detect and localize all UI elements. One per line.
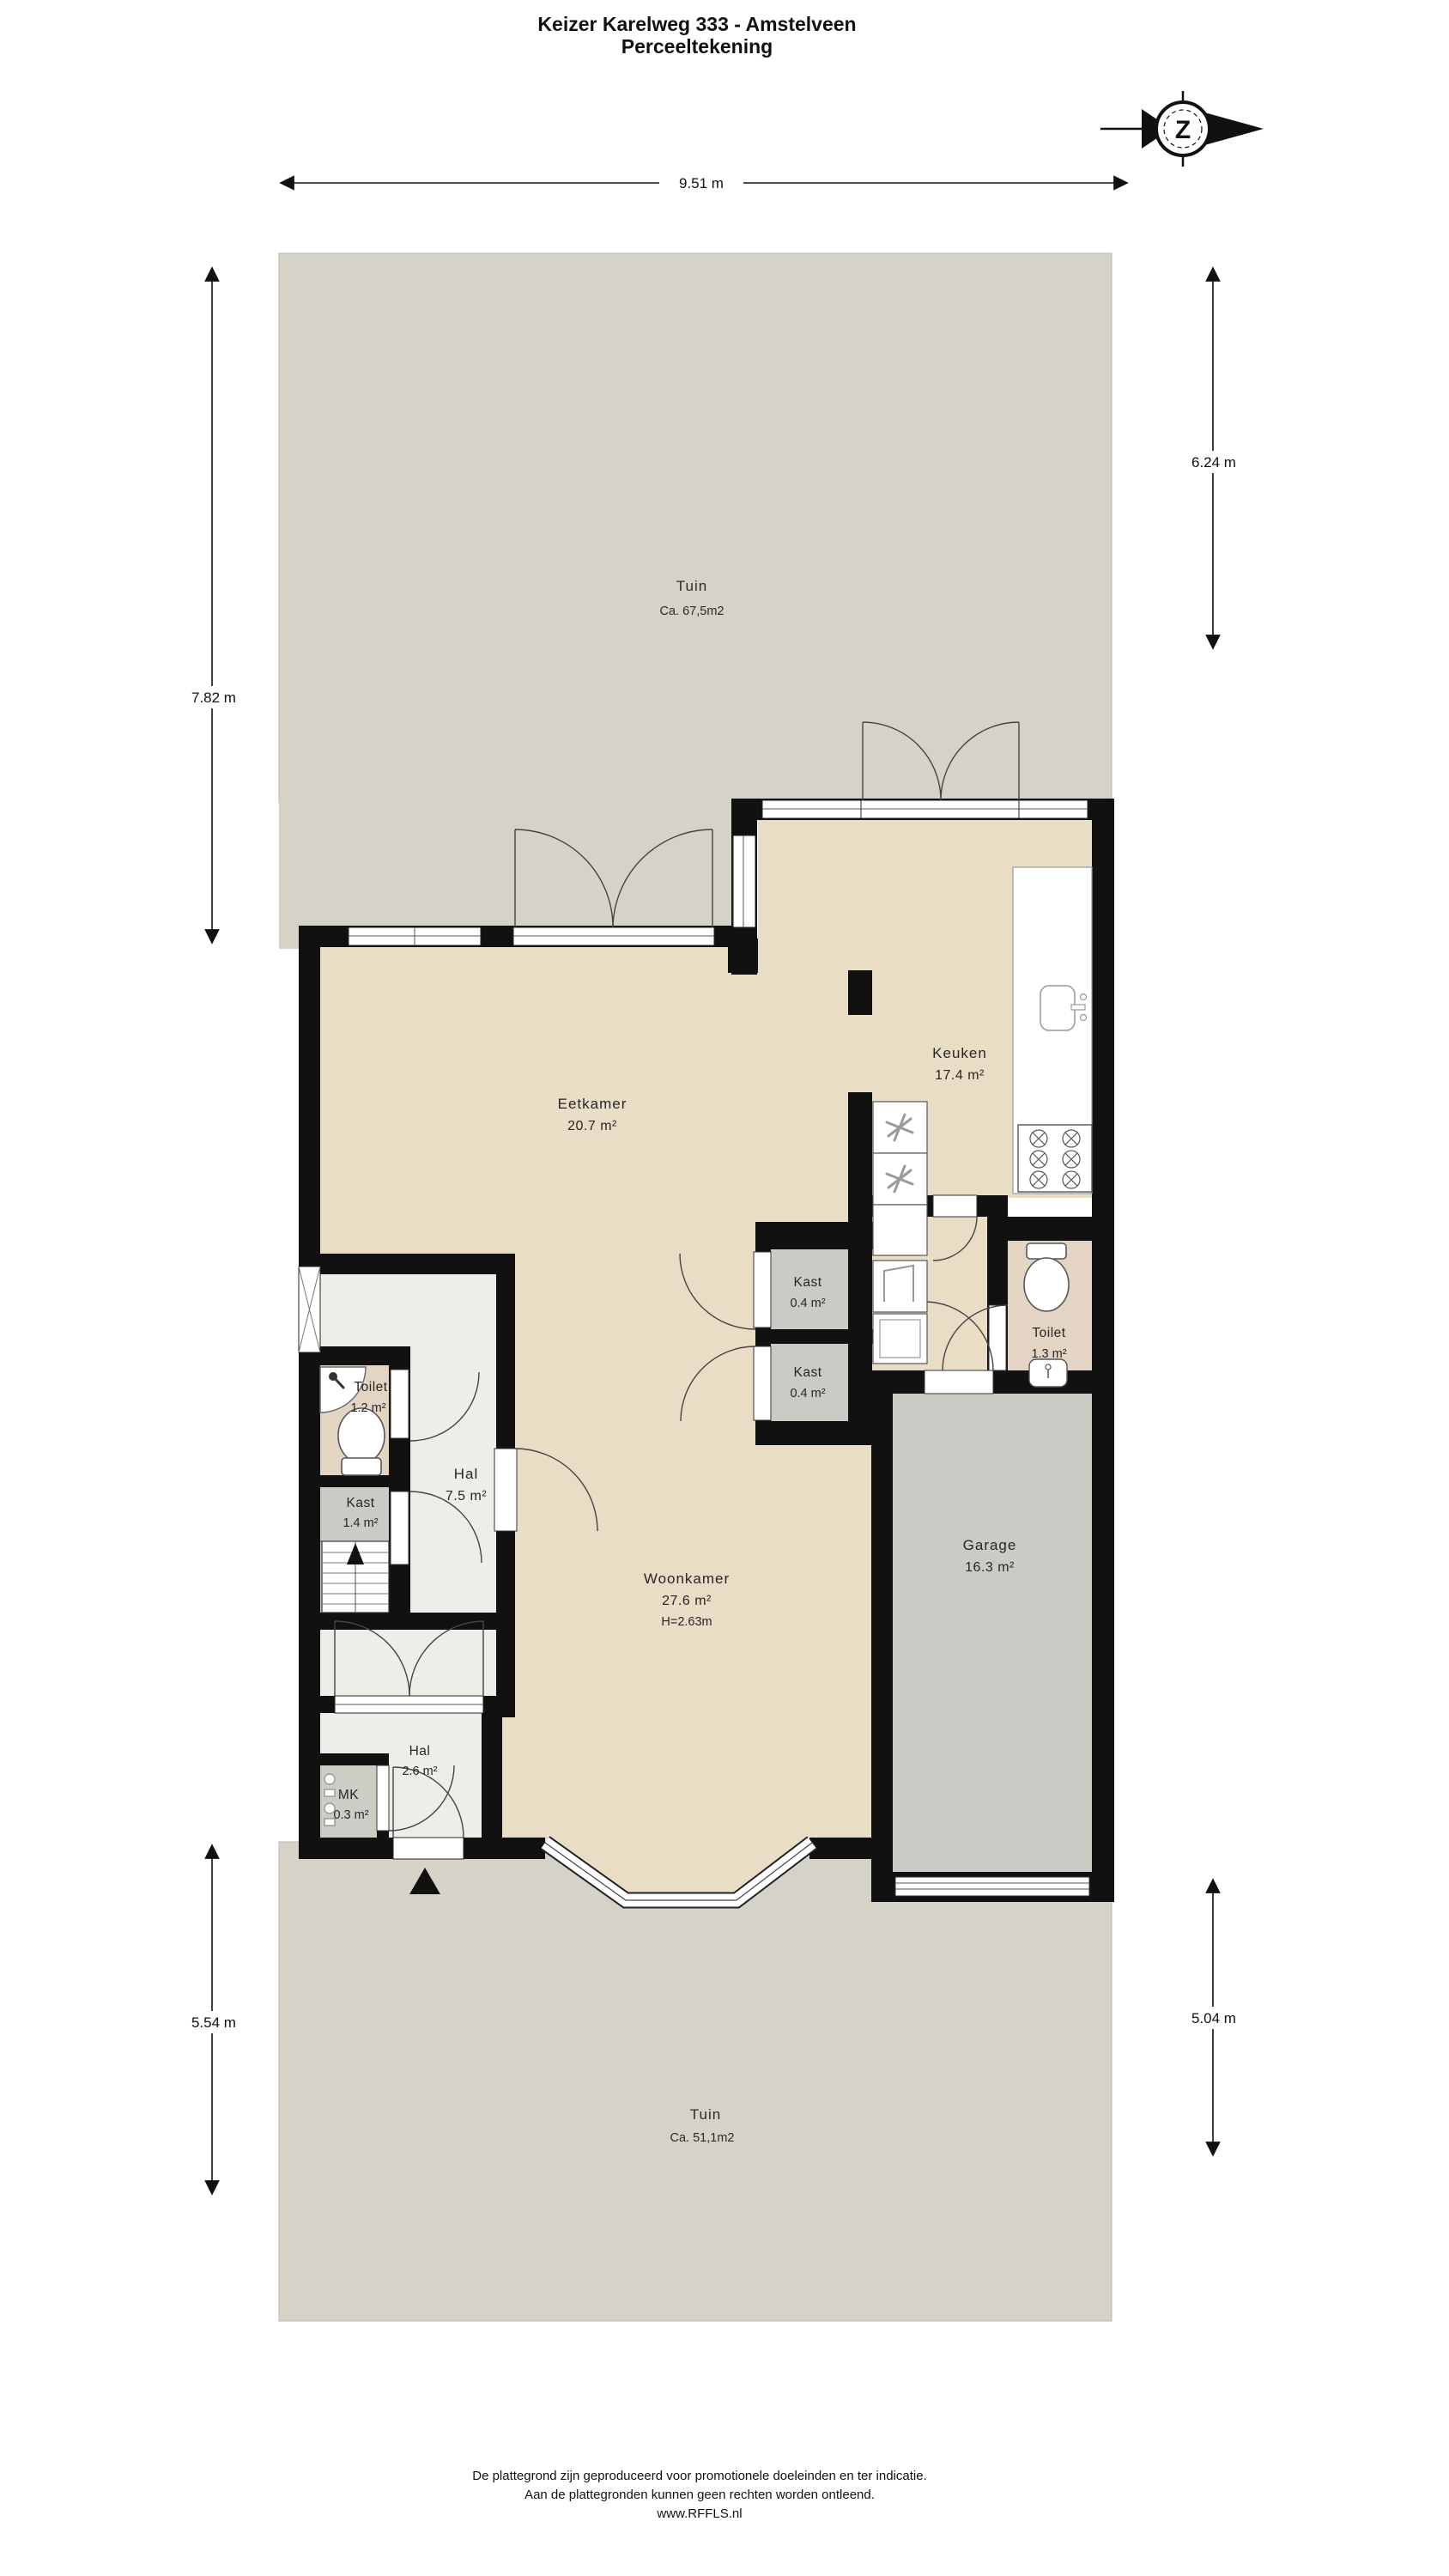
height-woonkamer: H=2.63m [661, 1615, 712, 1629]
area-toilet-hal: 1.2 m² [350, 1401, 385, 1415]
area-kast-onder: 0.4 m² [790, 1387, 825, 1400]
garden-top-size: Ca. 67,5m2 [660, 605, 724, 618]
floorplan-canvas: Keizer Karelweg 333 - Amstelveen Perceel… [0, 0, 1449, 2576]
window-kitchen-left [762, 800, 861, 818]
label-keuken: Keuken [932, 1045, 987, 1061]
garden-bottom-area [279, 1842, 1112, 2321]
label-woonkamer: Woonkamer [644, 1571, 730, 1587]
dim-left-upper-value: 7.82 m [191, 690, 236, 706]
appliances [873, 1102, 927, 1364]
dishwasher-icon [873, 1314, 927, 1364]
label-toilet-garage: Toilet [1032, 1326, 1065, 1340]
garden-top-label: Tuin [676, 578, 707, 594]
door-gap-garage [925, 1370, 993, 1394]
stove-icon [1018, 1125, 1092, 1192]
garage-door [895, 1877, 1089, 1896]
floor-kast-onder [771, 1344, 850, 1425]
wall-hal-top [320, 1254, 515, 1274]
dim-left-lower-value: 5.54 m [191, 2014, 236, 2031]
window-kitchen-side [733, 835, 755, 927]
dim-right-upper: 6.24 m [1173, 268, 1254, 648]
floor-hal-landing [320, 1630, 410, 1696]
garden-bottom: Tuin Ca. 51,1m2 [279, 1842, 1112, 2321]
wall-garage-left [871, 1370, 893, 1902]
wall-stub-kitchen [848, 970, 872, 1015]
window-kitchen-right [1019, 800, 1088, 818]
wall-left [299, 926, 320, 1859]
floor-garage [893, 1394, 1092, 1872]
door-gap-kast-boven [754, 1252, 771, 1327]
door-gap-toilet13 [989, 1305, 1006, 1370]
area-hal: 7.5 m² [446, 1489, 488, 1504]
label-hal: Hal [454, 1466, 479, 1482]
toilet13-tank [1027, 1243, 1066, 1259]
area-eetkamer: 20.7 m² [567, 1119, 617, 1133]
wall-stairs-bottom [320, 1613, 515, 1630]
wall-kast-mid [755, 1329, 873, 1344]
dim-top-value: 9.51 m [679, 175, 724, 191]
label-toilet-hal: Toilet [354, 1380, 387, 1394]
wall-bottom-left [299, 1838, 393, 1859]
footer-line1: De plattegrond zijn geproduceerd voor pr… [472, 2469, 927, 2483]
garden-bottom-size: Ca. 51,1m2 [670, 2131, 735, 2145]
wall-hal-entree-right [482, 1713, 502, 1842]
area-toilet-garage: 1.3 m² [1031, 1347, 1066, 1361]
garden-bottom-label: Tuin [690, 2106, 721, 2123]
floors [320, 820, 1092, 1901]
wall-kast-top [755, 1222, 873, 1249]
toilet-bowl-icon [338, 1408, 385, 1463]
area-woonkamer: 27.6 m² [662, 1594, 712, 1608]
label-garage: Garage [963, 1537, 1017, 1553]
wall-halldoor-left [320, 1696, 335, 1713]
compass-letter: Z [1175, 116, 1191, 144]
window-hal-side [299, 1267, 320, 1352]
window-dining [349, 927, 481, 945]
toilet-tank [342, 1458, 381, 1475]
door-gap-hal-woonkamer [494, 1449, 517, 1531]
dim-right-lower: 5.04 m [1173, 1880, 1254, 2155]
wall-right [1092, 799, 1114, 1902]
label-meterkast: MK [338, 1788, 359, 1802]
door-gap-kast-onder [754, 1346, 771, 1420]
dim-right-lower-value: 5.04 m [1191, 2010, 1236, 2026]
title-line2: Perceeltekening [621, 35, 773, 58]
area-keuken: 17.4 m² [935, 1068, 985, 1083]
door-gap-toilet12 [391, 1370, 409, 1438]
toilet13-bowl-icon [1024, 1258, 1069, 1311]
area-hal-entree: 2.6 m² [402, 1765, 437, 1778]
label-kast-boven: Kast [793, 1275, 822, 1290]
wall-corner-block [728, 939, 758, 973]
wall-kitchen-column [848, 1092, 872, 1445]
label-hal-entree: Hal [409, 1744, 431, 1759]
dim-top: 9.51 m [281, 171, 1127, 194]
dim-left-upper: 7.82 m [174, 268, 253, 943]
area-meterkast: 0.3 m² [333, 1808, 368, 1822]
compass-north-icon: Z [1100, 91, 1264, 167]
wall-toilet12-bottom [320, 1475, 410, 1487]
label-kast-hal: Kast [346, 1496, 374, 1510]
page-title: Keizer Karelweg 333 - Amstelveen Perceel… [537, 13, 856, 58]
door-gap-kitchen-corridor [933, 1195, 977, 1217]
footer: De plattegrond zijn geproduceerd voor pr… [472, 2469, 927, 2521]
footer-line3: www.RFFLS.nl [656, 2506, 742, 2521]
garden-top-area [279, 253, 1112, 803]
dim-right-upper-value: 6.24 m [1191, 454, 1236, 471]
wall-bottom-right [809, 1838, 873, 1859]
wall-kast-bottom [755, 1421, 873, 1445]
cabinet-icon [873, 1205, 927, 1255]
door-gap-mk [377, 1765, 389, 1831]
door-gap-kast14 [391, 1492, 409, 1564]
label-kast-onder: Kast [793, 1365, 822, 1380]
floor-hal-top [320, 1274, 496, 1346]
title-line1: Keizer Karelweg 333 - Amstelveen [537, 13, 856, 35]
label-eetkamer: Eetkamer [558, 1096, 627, 1112]
area-kast-hal: 1.4 m² [343, 1516, 378, 1530]
area-kast-boven: 0.4 m² [790, 1297, 825, 1310]
stairs [320, 1541, 389, 1613]
wall-bottom-mid [464, 1838, 545, 1859]
footer-line2: Aan de plattegronden kunnen geen rechten… [524, 2488, 875, 2502]
wall-toilet13-top [987, 1217, 1114, 1241]
area-garage: 16.3 m² [965, 1560, 1015, 1575]
wall-halldoor-right [483, 1696, 515, 1713]
dim-left-lower: 5.54 m [174, 1845, 253, 2194]
